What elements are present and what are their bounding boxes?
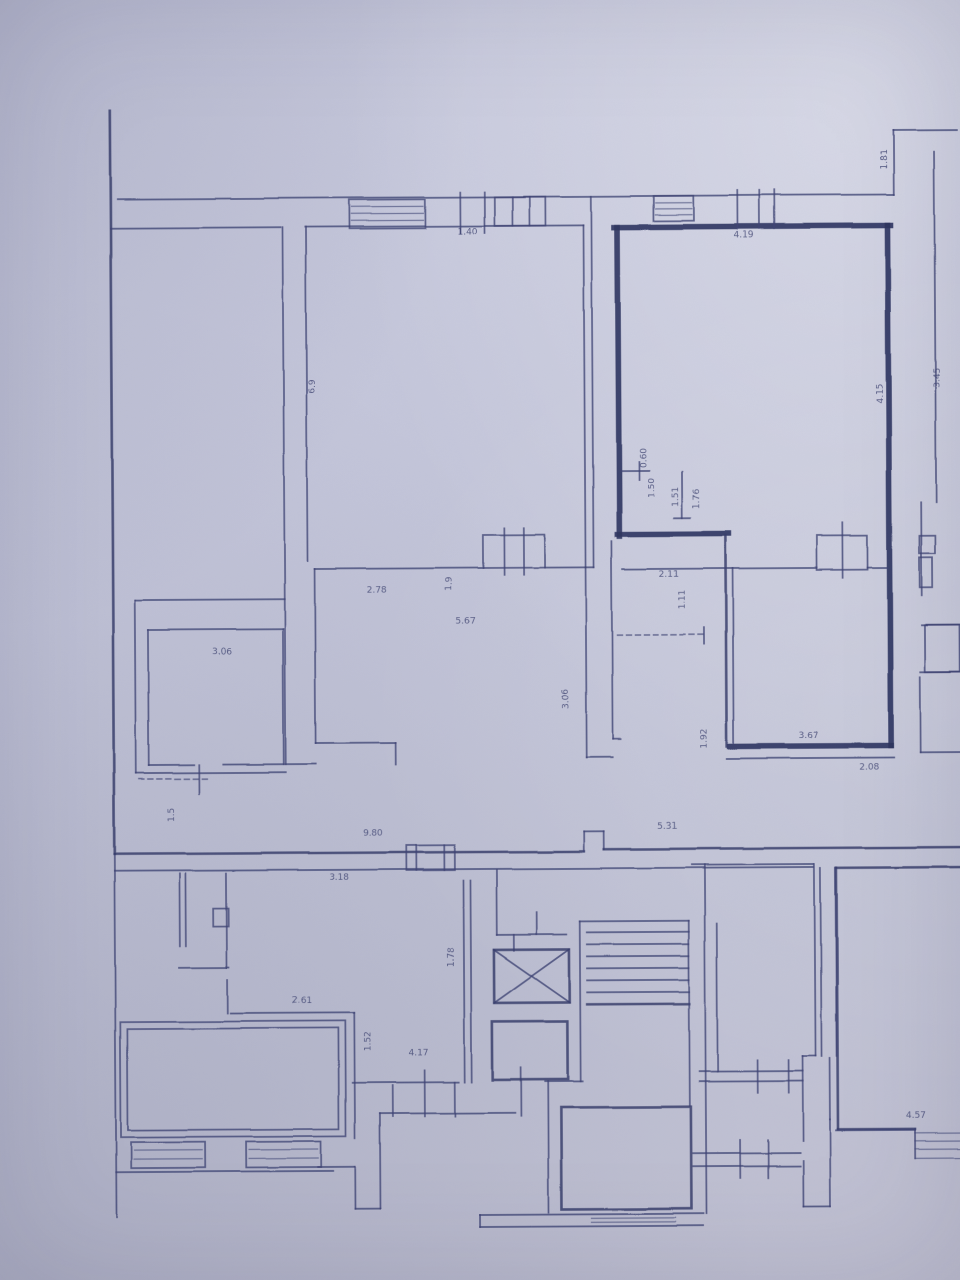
scanned-floor-plan-photo: 6.91.404.191.813.454.150.601.501.511.762…: [0, 0, 960, 1280]
floor-plan-svg: 6.91.404.191.813.454.150.601.501.511.762…: [0, 0, 960, 1280]
paper-grain-overlay: [0, 0, 960, 1280]
